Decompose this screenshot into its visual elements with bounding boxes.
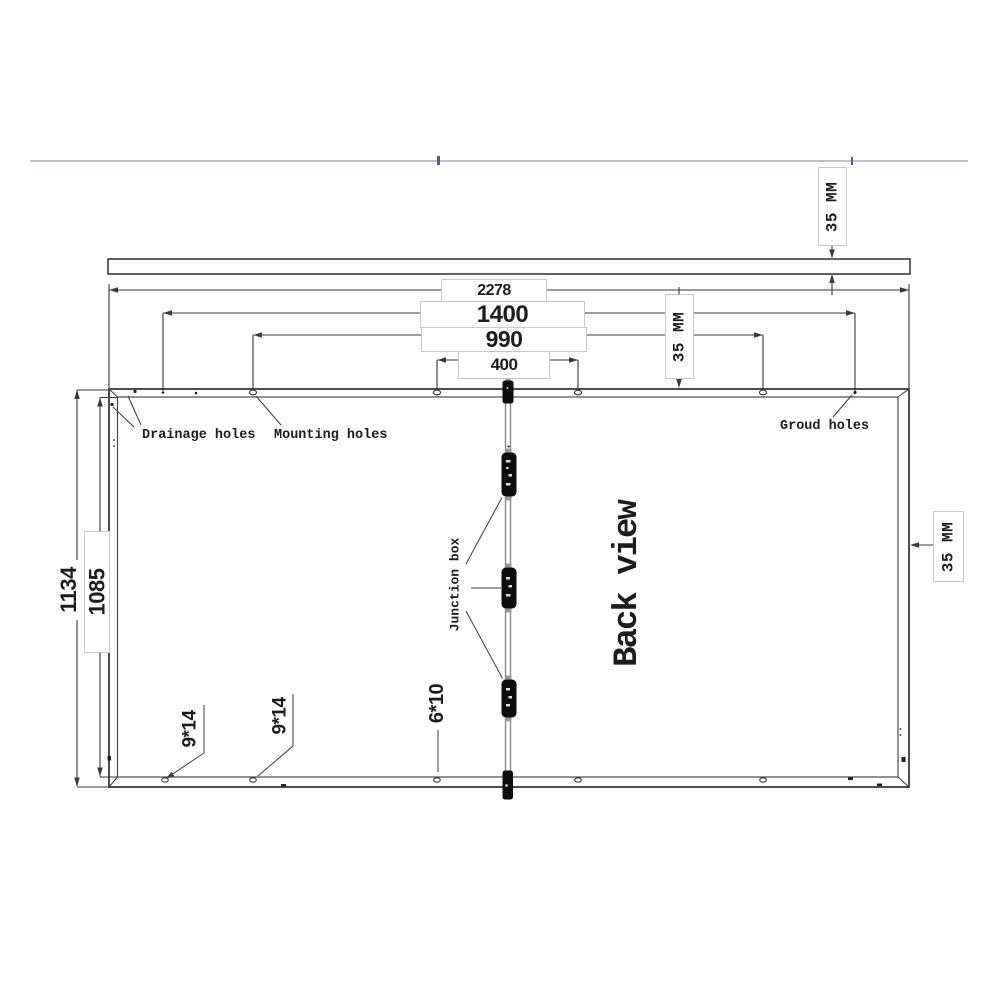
back-view-text: Back view — [609, 501, 647, 667]
junction-box-3 — [502, 676, 517, 722]
panel-side-view-bar — [108, 259, 910, 274]
dim-value-35mm-top: 35 MM — [824, 181, 842, 232]
hole-spec-9x14-left-text: 9*14 — [180, 710, 202, 747]
dim-box-2278: 2278 — [441, 279, 547, 302]
back-view-title: Back view — [597, 484, 659, 684]
section-separator-line — [30, 156, 968, 165]
ground-holes-text: Groud holes — [780, 419, 869, 434]
dim-value-400: 400 — [491, 355, 518, 375]
ground-holes-label: Groud holes — [780, 418, 869, 435]
mounting-holes-label: Mounting holes — [274, 427, 387, 444]
dim-box-990: 990 — [421, 327, 587, 352]
dim-box-400: 400 — [458, 351, 550, 379]
hole-spec-9x14-mid-text: 9*14 — [270, 697, 292, 734]
cable-dot — [507, 445, 509, 447]
dim-value-1134: 1134 — [56, 567, 82, 613]
junction-box-label: Junction box — [444, 535, 466, 633]
dim-box-1085: 1085 — [84, 531, 110, 653]
top-connector — [503, 377, 514, 404]
solar-panel-back-view-drawing: 2278 1400 990 400 35 MM 35 MM 35 MM 1085… — [0, 0, 1000, 1000]
dim-value-35mm-right: 35 MM — [940, 521, 958, 572]
dim-value-2278: 2278 — [477, 282, 511, 300]
mounting-holes-text: Mounting holes — [274, 428, 387, 443]
dim-value-990: 990 — [486, 326, 523, 353]
bottom-connector — [503, 771, 514, 800]
hole-spec-9x14-mid: 9*14 — [269, 692, 293, 740]
hole-spec-6x10: 6*10 — [426, 676, 450, 730]
dim-value-1085: 1085 — [84, 569, 110, 616]
dim-box-1400: 1400 — [420, 301, 585, 328]
junction-box-text: Junction box — [448, 537, 463, 631]
junction-box-2 — [502, 564, 517, 613]
dim-box-35mm-top: 35 MM — [818, 167, 847, 246]
drawing-linework — [0, 0, 1000, 1000]
drainage-holes-label: Drainage holes — [142, 427, 255, 444]
hole-spec-6x10-text: 6*10 — [427, 683, 450, 722]
junction-box-1 — [502, 449, 517, 501]
dim-value-35mm-mid: 35 MM — [671, 311, 689, 362]
dim-box-35mm-right: 35 MM — [933, 511, 964, 582]
dim-box-35mm-mid: 35 MM — [665, 294, 694, 379]
dim-value-1400: 1400 — [477, 301, 528, 329]
drainage-holes-text: Drainage holes — [142, 428, 255, 443]
hole-spec-9x14-left: 9*14 — [179, 704, 203, 754]
dim-label-1134: 1134 — [55, 560, 82, 620]
